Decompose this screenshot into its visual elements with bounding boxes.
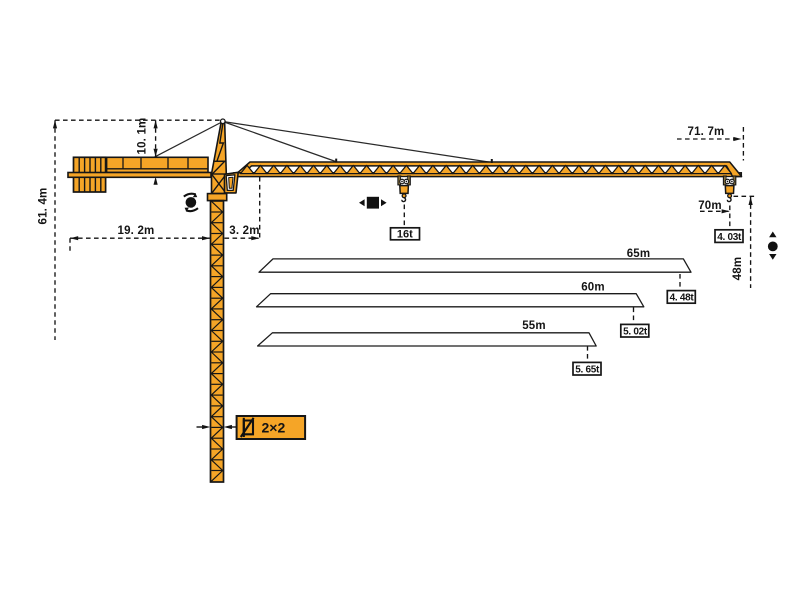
svg-text:10. 1m: 10. 1m <box>137 117 149 154</box>
svg-text:5. 02t: 5. 02t <box>623 326 648 337</box>
svg-text:71. 7m: 71. 7m <box>687 126 724 138</box>
svg-text:48m: 48m <box>732 257 744 281</box>
svg-text:65m: 65m <box>627 248 651 260</box>
svg-text:4. 03t: 4. 03t <box>717 232 742 243</box>
svg-text:55m: 55m <box>522 320 546 332</box>
svg-text:2×2: 2×2 <box>262 420 286 436</box>
svg-text:19. 2m: 19. 2m <box>117 225 154 237</box>
svg-text:61. 4m: 61. 4m <box>38 187 50 224</box>
svg-text:16t: 16t <box>397 229 413 241</box>
svg-text:60m: 60m <box>581 282 605 294</box>
svg-text:4. 48t: 4. 48t <box>670 293 695 304</box>
svg-text:70m: 70m <box>698 200 722 212</box>
svg-text:3. 2m: 3. 2m <box>229 225 259 237</box>
svg-text:5. 65t: 5. 65t <box>575 364 600 375</box>
